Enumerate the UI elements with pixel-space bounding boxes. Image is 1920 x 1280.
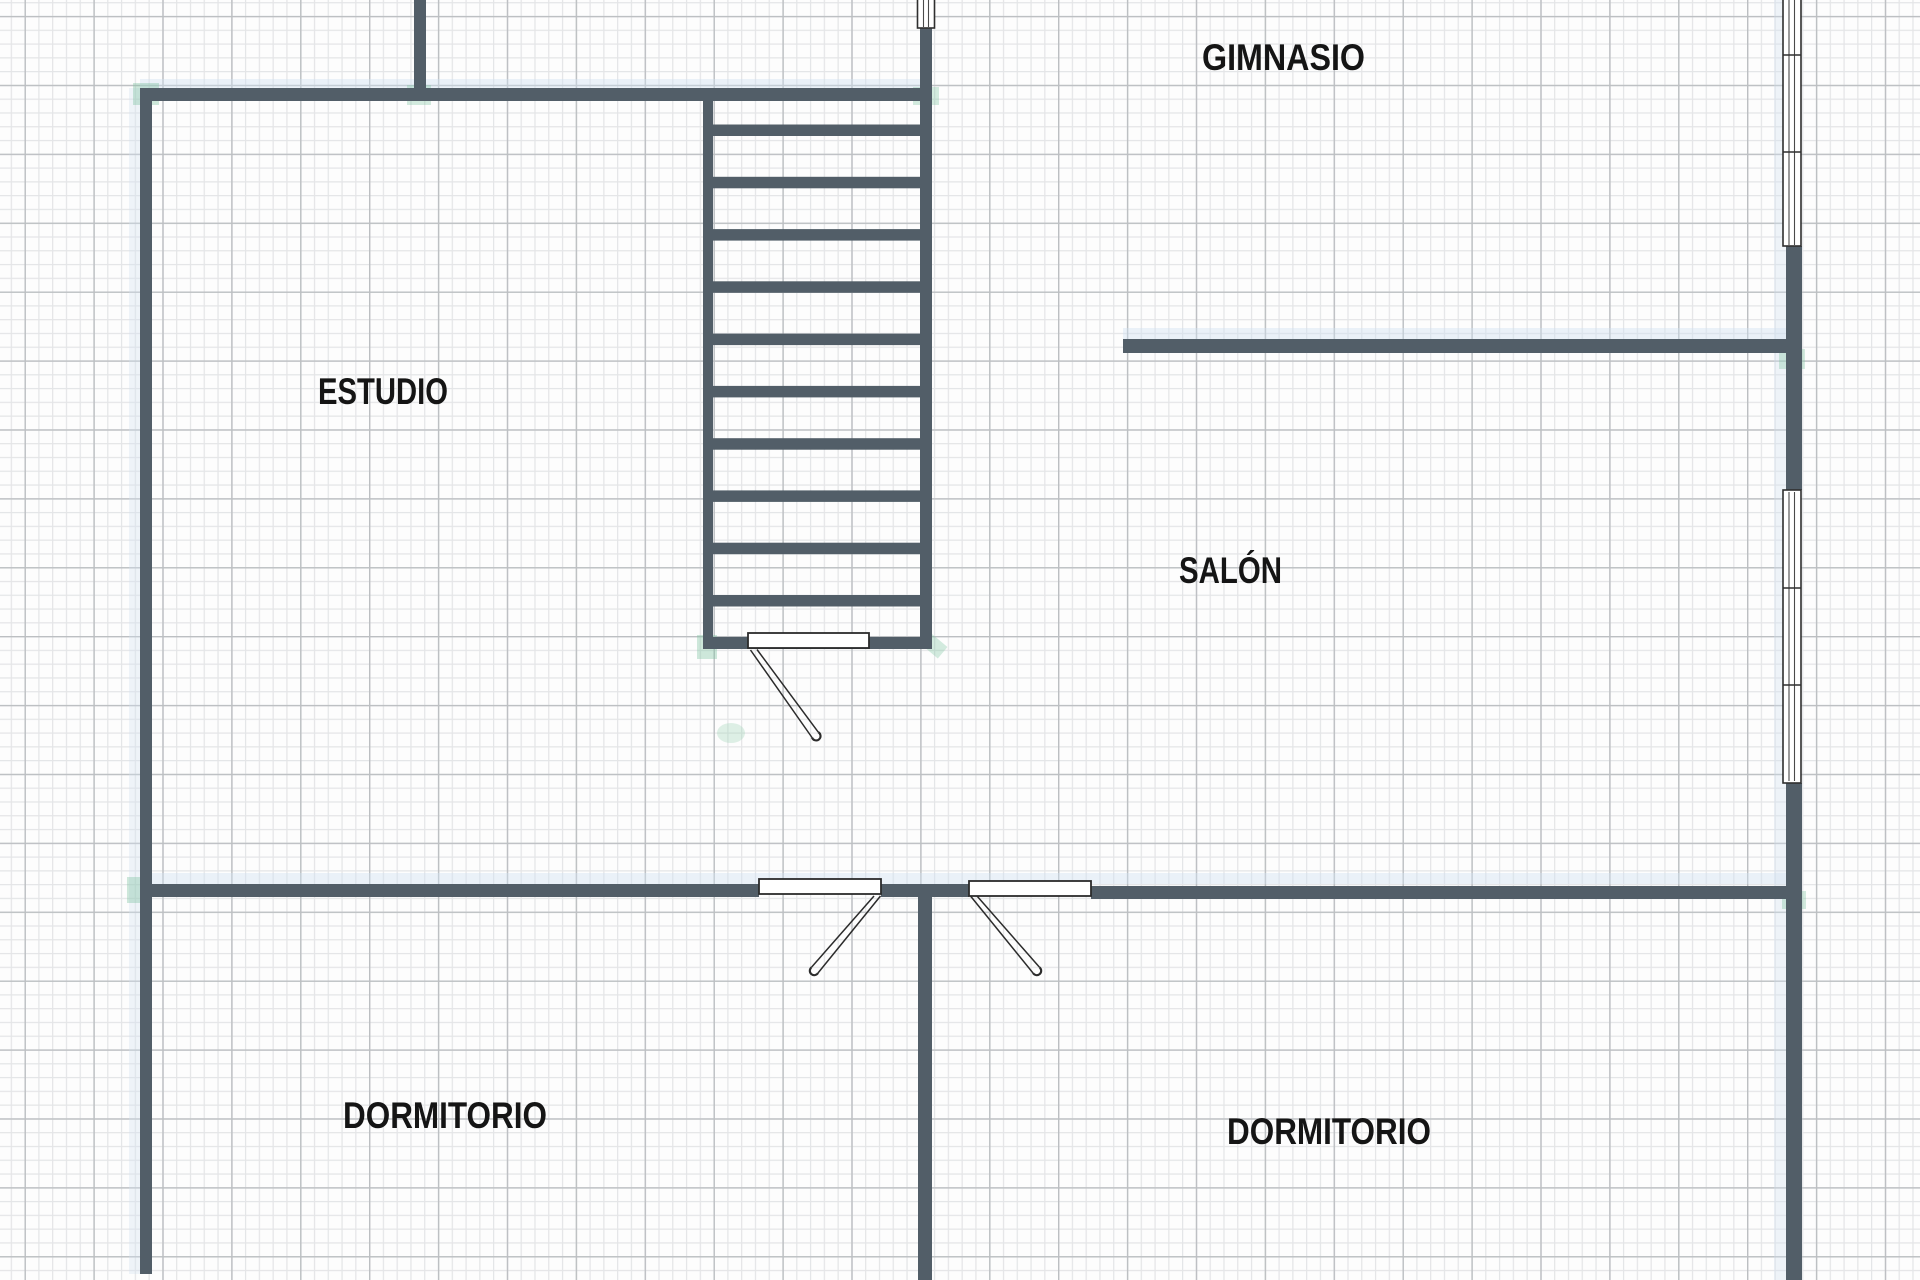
svg-text:SALÓN: SALÓN bbox=[1179, 549, 1282, 591]
svg-text:ESTUDIO: ESTUDIO bbox=[318, 371, 448, 412]
svg-text:DORMITORIO: DORMITORIO bbox=[1227, 1111, 1431, 1152]
svg-text:GIMNASIO: GIMNASIO bbox=[1202, 37, 1365, 78]
svg-text:DORMITORIO: DORMITORIO bbox=[343, 1095, 547, 1136]
